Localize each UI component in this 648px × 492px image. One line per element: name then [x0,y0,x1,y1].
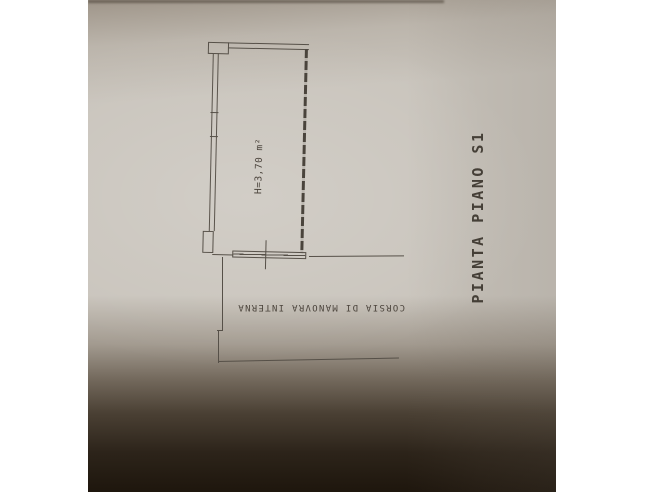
door-threshold-line [212,254,233,256]
lane-label: CORSIA DI MANOVRA INTERNA [237,302,405,312]
screenshot: H=3,70 m² CORSIA DI MANOVRA INTERNA PIAN… [0,0,648,492]
wall-joint-mark [210,112,218,113]
column-bottom-left [202,231,213,253]
lane-left-line [222,257,223,331]
garage-door [232,250,306,259]
wall-joint-mark [210,136,218,137]
room-height-label: H=3,70 m² [253,138,265,194]
lane-left-line-lower [218,330,219,363]
column-top-left [208,42,229,54]
garage-left-wall [209,53,219,231]
garage-top-wall [228,42,309,50]
floor-plan-photo: H=3,70 m² CORSIA DI MANOVRA INTERNA PIAN… [88,0,556,492]
plan-title: PIANTA PIANO S1 [469,131,487,304]
garage-right-wall-dashed [300,49,307,253]
